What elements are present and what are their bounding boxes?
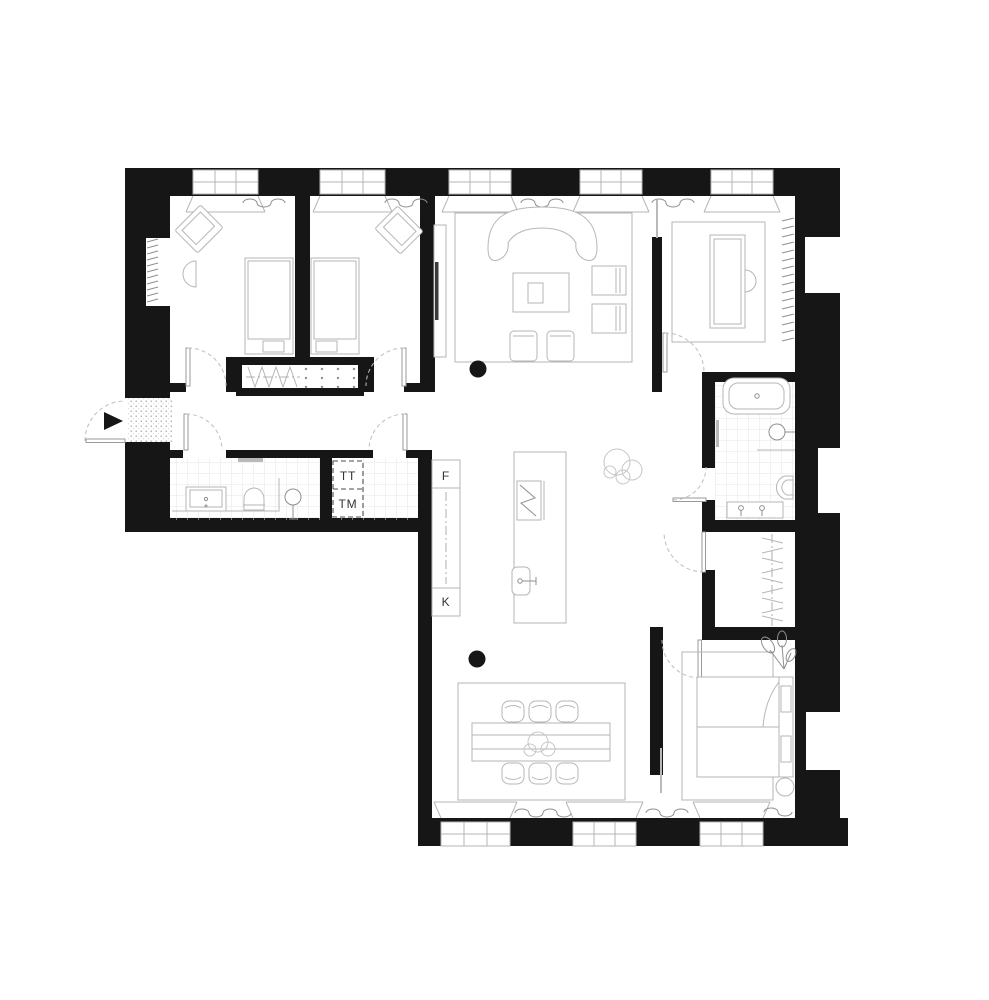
wall-l-vertical xyxy=(418,450,432,835)
window-bottom-3 xyxy=(693,802,770,846)
glass-partition xyxy=(656,200,658,238)
coffee-table-icon xyxy=(513,273,569,312)
office xyxy=(672,218,794,342)
kitchen-island xyxy=(512,452,566,623)
curtain-icon xyxy=(646,809,688,817)
chair-icon xyxy=(502,701,524,722)
curtain-icon xyxy=(652,199,694,207)
floor-plan-page: TT TM F K xyxy=(0,0,989,1000)
chair-icon xyxy=(529,701,551,722)
door-walk-in-closet xyxy=(664,532,706,572)
armchair-icon xyxy=(592,266,626,295)
closet-bottom xyxy=(236,388,364,396)
wall-bed1-bed2 xyxy=(295,196,310,357)
doormat xyxy=(128,397,172,443)
pouf-icon xyxy=(510,331,537,361)
window-top-1 xyxy=(186,170,265,212)
wall-hall-south-b xyxy=(226,450,373,458)
tv-cabinet-icon xyxy=(434,225,446,357)
bedroom-2 xyxy=(311,206,423,354)
door-bathroom-main xyxy=(673,467,706,502)
radiator-icon xyxy=(782,218,794,341)
dryer-label: TT xyxy=(340,469,356,483)
dining-table-icon xyxy=(472,723,610,761)
entrance xyxy=(85,397,172,443)
wall-bathroom-west-b xyxy=(702,500,715,520)
door-office xyxy=(663,333,704,372)
desk-chair-icon xyxy=(183,261,196,287)
window-top-2 xyxy=(313,170,392,212)
hanger-rail-icon xyxy=(248,367,297,387)
bathroom-guest xyxy=(170,458,320,520)
chair-icon xyxy=(556,701,578,722)
bedroom-3 xyxy=(660,631,798,800)
washer-label: TM xyxy=(339,497,358,511)
shelf-dots xyxy=(305,368,355,388)
tv-icon xyxy=(435,262,439,320)
towel-rail-icon xyxy=(716,420,719,447)
window-top-5 xyxy=(704,170,780,212)
floor-plan: TT TM F K xyxy=(0,0,989,1000)
bed-icon xyxy=(697,677,793,777)
facade-notch-3 xyxy=(806,712,840,770)
window-bottom-2 xyxy=(566,802,643,846)
bathtub-icon xyxy=(723,378,790,414)
chair-icon xyxy=(502,763,524,784)
walk-in-closet xyxy=(762,534,783,626)
hall-closet xyxy=(246,367,355,388)
curtain-icon xyxy=(764,808,792,816)
chair-icon xyxy=(529,763,551,784)
laundry: TT TM xyxy=(332,458,418,520)
wall-bottom-left-wing xyxy=(125,518,432,532)
desk-chair-icon xyxy=(745,270,756,292)
window-top-3 xyxy=(442,170,518,212)
column-dot xyxy=(470,361,487,378)
fridge-label: F xyxy=(442,469,450,483)
wall-bathroom-west-a xyxy=(702,382,715,468)
window-bottom-1 xyxy=(434,802,517,846)
wall-hall-south-a xyxy=(170,450,183,458)
wall-closet-south xyxy=(702,627,795,640)
shelf xyxy=(238,458,263,462)
door-laundry xyxy=(369,414,407,450)
wall-bedrooms-south-c xyxy=(358,357,374,392)
wall-bed2-living xyxy=(420,196,435,392)
freezer-label: K xyxy=(442,595,451,609)
toilet-icon xyxy=(776,476,793,499)
column-dot xyxy=(469,651,486,668)
wall-closet-west xyxy=(702,570,715,627)
door-bedroom-1 xyxy=(186,348,226,386)
desk-icon xyxy=(710,235,756,328)
armchair-icon xyxy=(592,304,626,333)
stool-icon xyxy=(776,778,794,796)
wall-bedrooms-south-d xyxy=(404,383,435,392)
toilet-icon xyxy=(243,488,265,510)
curtain-icon xyxy=(515,809,571,817)
wall-left xyxy=(125,168,170,532)
sink-icon xyxy=(186,487,226,511)
kitchen xyxy=(432,449,642,623)
hangers xyxy=(762,538,783,621)
sofa-icon xyxy=(488,207,597,261)
curtain-icon xyxy=(521,199,563,207)
wall-hall-south-c xyxy=(406,450,432,458)
wall-living-office xyxy=(652,237,662,392)
facade-notch-1 xyxy=(805,237,840,293)
chair-icon xyxy=(556,763,578,784)
door-bathroom-guest xyxy=(184,414,222,450)
curtain-icon xyxy=(243,199,285,207)
bed-icon xyxy=(245,258,293,354)
entrance-door-leaf xyxy=(86,439,125,443)
wall-bedrooms-south-b xyxy=(226,357,242,392)
facade-notch-2 xyxy=(818,448,840,513)
tall-unit-run xyxy=(432,460,460,616)
living-room xyxy=(434,200,658,378)
double-vanity-icon xyxy=(727,502,783,518)
bathroom-main xyxy=(715,378,795,520)
washer-dryer-stack: TT TM xyxy=(333,461,363,517)
wall-bedrooms-south-a xyxy=(170,383,186,392)
closet-top xyxy=(242,357,358,365)
wall-bathroom-south xyxy=(702,520,795,532)
dining-area xyxy=(458,651,625,801)
entrance-arrow-icon xyxy=(104,412,123,430)
pouf-icon xyxy=(547,331,574,361)
curtain-rail xyxy=(660,748,662,793)
window-top-4 xyxy=(573,170,649,212)
wall-bath-laundry xyxy=(320,458,332,520)
bed-icon xyxy=(311,258,359,354)
armchair-icon xyxy=(375,206,423,254)
plant-icon xyxy=(604,449,642,484)
